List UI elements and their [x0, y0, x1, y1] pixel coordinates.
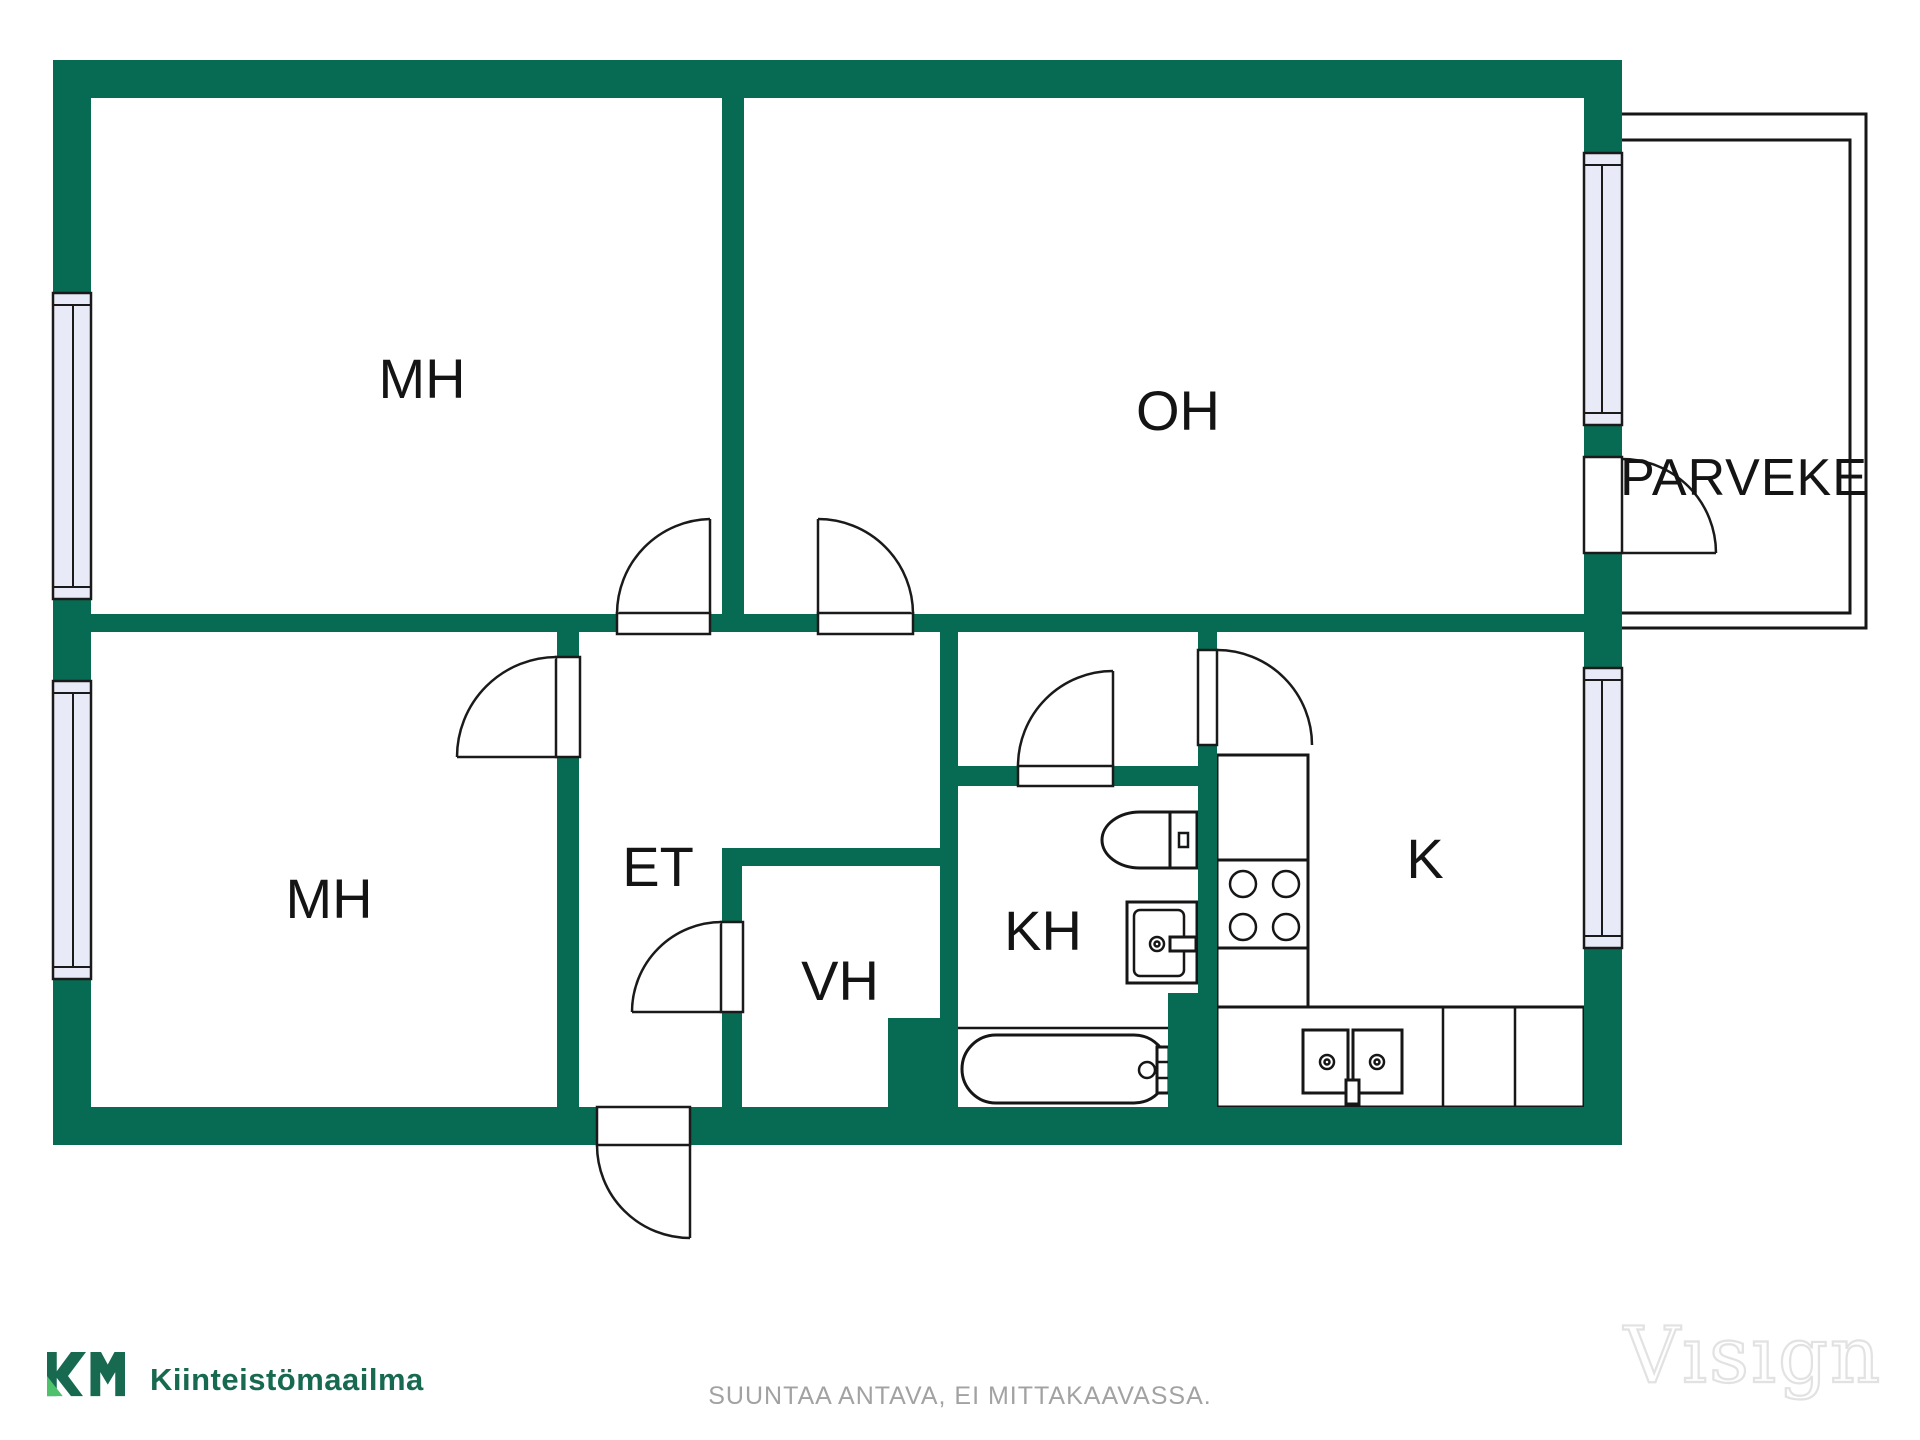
- kitchen-sink-icon: [1303, 1030, 1402, 1104]
- threshold-k-door: [1198, 650, 1217, 745]
- km-logo-wordmark: Kiinteistömaailma: [150, 1362, 424, 1397]
- window-mh-bottom: [53, 681, 91, 979]
- wall-vh-left-upper: [722, 848, 742, 922]
- wall-mh2-et-lower: [557, 757, 579, 1107]
- room-label-mh-top: MH: [378, 347, 465, 410]
- door-front: [597, 1145, 690, 1238]
- threshold-mh-top-door: [617, 613, 710, 634]
- wall-middle-right: [911, 614, 1584, 632]
- door-mh-top: [617, 519, 710, 614]
- wall-outer-top: [53, 60, 1622, 98]
- km-logo-icon: [47, 1352, 125, 1396]
- floorplan-page: MH OH PARVEKE MH ET VH KH K Kiinteistöma…: [0, 0, 1920, 1440]
- door-mh-bottom: [457, 657, 557, 757]
- window-k: [1584, 668, 1622, 948]
- washbasin-icon: [1127, 902, 1197, 983]
- wall-kh-k-step: [1168, 993, 1217, 1107]
- threshold-balcony-door: [1584, 457, 1622, 553]
- room-label-parveke: PARVEKE: [1620, 449, 1868, 507]
- door-oh: [818, 519, 913, 614]
- wall-vh-top: [722, 848, 958, 866]
- balcony-outline: [1622, 114, 1866, 628]
- kitchen-fixtures: [1217, 755, 1584, 1107]
- threshold-kh-door: [1018, 766, 1113, 786]
- door-vh: [632, 922, 722, 1012]
- room-label-k: K: [1406, 827, 1443, 890]
- wall-outer-bottom: [53, 1107, 1622, 1145]
- threshold-front-door: [597, 1107, 690, 1145]
- room-label-kh: KH: [1004, 899, 1082, 962]
- bathtub-icon: [962, 1035, 1169, 1103]
- stove-icon: [1217, 860, 1308, 948]
- shaft-block: [888, 1018, 958, 1107]
- door-kh: [1018, 671, 1113, 766]
- wall-kh-k-stub: [1198, 632, 1217, 650]
- window-mh-top: [53, 293, 91, 599]
- wall-middle-left: [91, 614, 617, 632]
- floorplan-canvas: MH OH PARVEKE MH ET VH KH K Kiinteistöma…: [0, 0, 1920, 1440]
- window-oh-balcony: [1584, 153, 1622, 425]
- threshold-oh-door: [818, 613, 913, 634]
- balcony-outer-line: [1622, 114, 1866, 628]
- room-label-oh: OH: [1136, 379, 1220, 442]
- threshold-vh-door: [721, 922, 743, 1012]
- balcony-inner-line: [1622, 140, 1850, 613]
- wall-outer-left: [53, 60, 91, 1145]
- door-k: [1217, 650, 1312, 745]
- room-label-et: ET: [622, 835, 694, 898]
- wall-kh-top-right: [1113, 766, 1198, 786]
- footer-disclaimer: SUUNTAA ANTAVA, EI MITTAKAAVASSA.: [708, 1382, 1211, 1410]
- room-label-mh-bottom: MH: [285, 867, 372, 930]
- wall-kh-top-left: [940, 766, 1018, 786]
- wall-vh-left-lower: [722, 1012, 742, 1107]
- threshold-mh-bottom-door: [556, 657, 580, 757]
- km-logo: Kiinteistömaailma: [47, 1352, 424, 1397]
- visign-watermark: Vısıgn: [1623, 1311, 1882, 1401]
- toilet-icon: [1102, 812, 1197, 868]
- wall-mh-oh-divider: [722, 98, 744, 632]
- room-label-vh: VH: [801, 949, 879, 1012]
- wall-mh2-et-upper: [557, 632, 579, 657]
